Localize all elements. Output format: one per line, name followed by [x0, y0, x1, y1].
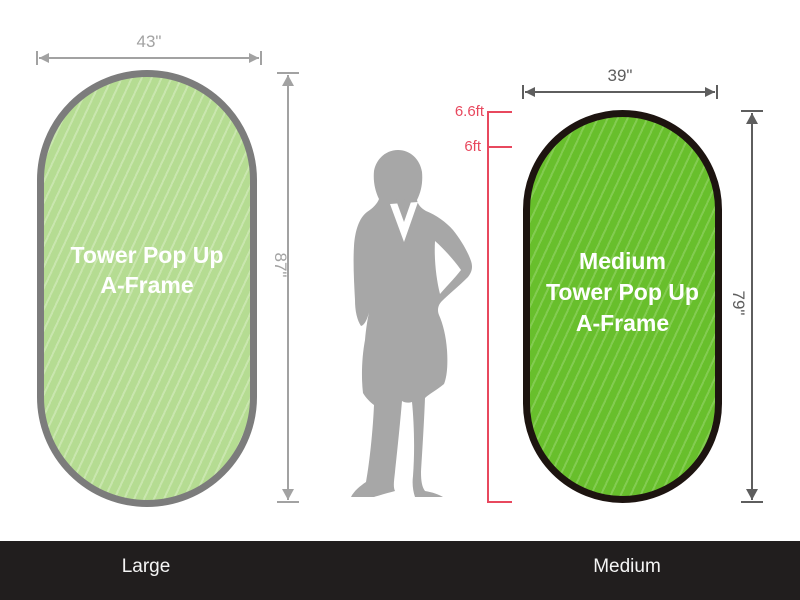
- large-height-value: 87": [268, 250, 290, 280]
- medium-banner-label: Medium Tower Pop Up A-Frame: [530, 246, 715, 339]
- size-footer-bar: Large Medium: [0, 541, 800, 600]
- dimension-end-cap: [36, 51, 38, 65]
- medium-width-dimension-arrow: 39": [522, 85, 718, 99]
- person-silhouette: [337, 150, 473, 497]
- arrowhead-left-icon: [39, 53, 49, 63]
- arrowhead-down-icon: [282, 489, 294, 500]
- large-banner-label-line1: Tower Pop Up: [44, 240, 250, 270]
- height-mark-6-6ft: 6.6ft: [442, 103, 484, 120]
- silhouette-body: [351, 150, 472, 497]
- arrowhead-up-icon: [282, 75, 294, 86]
- ruler-tick-6-6ft: [487, 111, 512, 113]
- footer-label-large: Large: [86, 556, 206, 578]
- medium-banner-label-line2: Tower Pop Up: [530, 277, 715, 308]
- medium-height-value: 79": [726, 288, 748, 318]
- large-tower-banner-graphic: Tower Pop Up A-Frame: [37, 70, 257, 507]
- footer-label-medium: Medium: [567, 556, 687, 578]
- medium-banner-label-line3: A-Frame: [530, 308, 715, 339]
- dimension-end-cap: [277, 72, 299, 74]
- large-width-dimension-arrow: 43": [36, 51, 262, 65]
- dimension-line: [525, 91, 715, 93]
- arrowhead-down-icon: [746, 489, 758, 500]
- ruler-tick-ground: [487, 501, 512, 503]
- medium-width-value: 39": [522, 66, 718, 86]
- medium-tower-banner-graphic: Medium Tower Pop Up A-Frame: [523, 110, 722, 503]
- large-width-value: 43": [36, 32, 262, 52]
- ruler-tick-6ft: [487, 146, 512, 148]
- arrowhead-left-icon: [525, 87, 535, 97]
- arrowhead-up-icon: [746, 113, 758, 124]
- dimension-end-cap: [716, 85, 718, 99]
- dimension-end-cap: [522, 85, 524, 99]
- ruler-vertical-line: [487, 111, 489, 503]
- arrowhead-right-icon: [705, 87, 715, 97]
- dimension-line: [287, 75, 289, 500]
- dimension-line: [39, 57, 259, 59]
- large-banner-label-line2: A-Frame: [44, 270, 250, 300]
- dimension-end-cap: [277, 501, 299, 503]
- large-height-dimension-arrow: [277, 72, 299, 503]
- dimension-end-cap: [260, 51, 262, 65]
- dimension-end-cap: [741, 110, 763, 112]
- arrowhead-right-icon: [249, 53, 259, 63]
- medium-banner-label-line1: Medium: [530, 246, 715, 277]
- dimension-line: [751, 113, 753, 500]
- large-banner-label: Tower Pop Up A-Frame: [44, 240, 250, 300]
- dimension-end-cap: [741, 501, 763, 503]
- person-height-ruler: [487, 111, 512, 503]
